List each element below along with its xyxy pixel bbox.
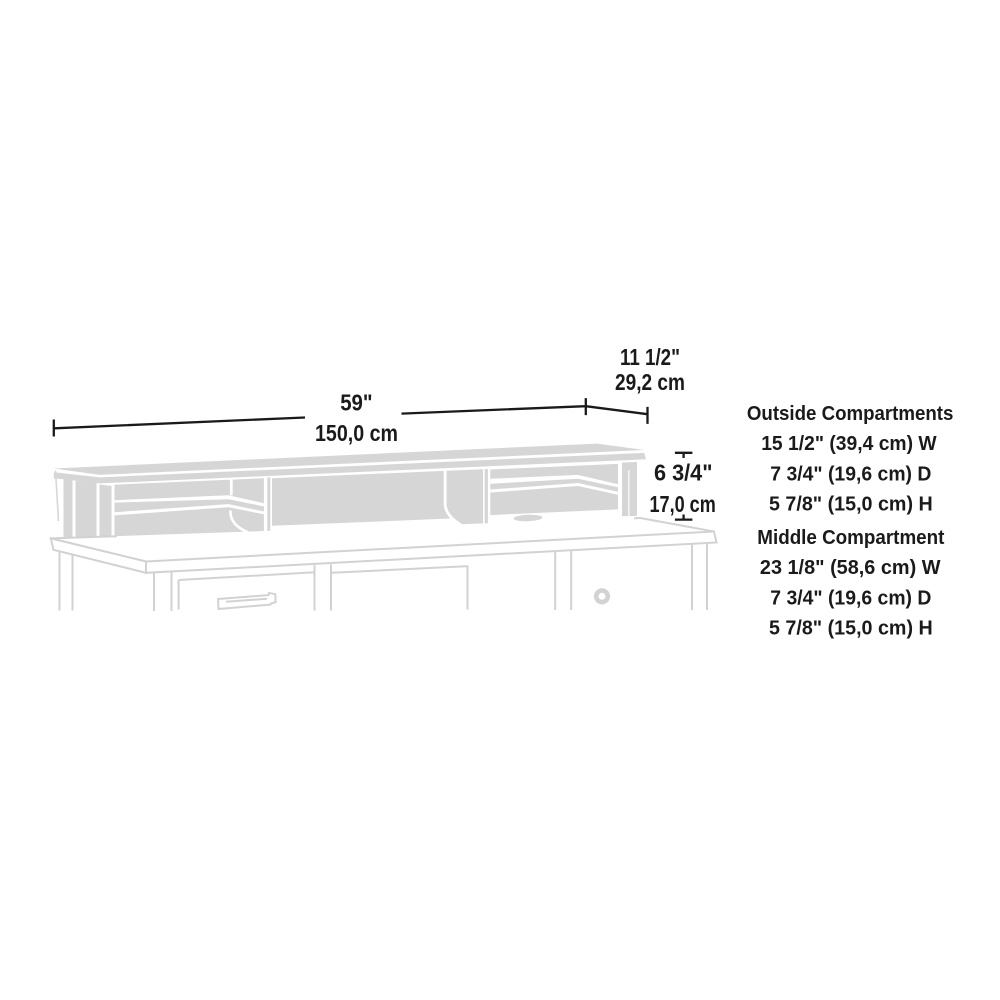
svg-text:Outside Compartments: Outside Compartments [747,403,954,425]
svg-text:6 3/4": 6 3/4" [654,460,713,486]
svg-text:7 3/4" (19,6 cm) D: 7 3/4" (19,6 cm) D [770,587,931,609]
svg-text:11 1/2": 11 1/2" [620,344,680,370]
svg-text:59": 59" [340,389,372,415]
svg-text:23 1/8" (58,6 cm) W: 23 1/8" (58,6 cm) W [760,557,942,579]
svg-text:17,0 cm: 17,0 cm [650,491,716,517]
svg-text:Middle Compartment: Middle Compartment [757,527,944,549]
svg-text:15 1/2" (39,4 cm) W: 15 1/2" (39,4 cm) W [761,433,937,455]
svg-text:7 3/4" (19,6 cm) D: 7 3/4" (19,6 cm) D [770,463,931,485]
svg-text:5 7/8" (15,0 cm) H: 5 7/8" (15,0 cm) H [769,618,933,640]
svg-text:29,2 cm: 29,2 cm [615,369,685,395]
svg-text:5 7/8" (15,0 cm) H: 5 7/8" (15,0 cm) H [769,494,933,516]
svg-text:150,0 cm: 150,0 cm [315,420,398,446]
